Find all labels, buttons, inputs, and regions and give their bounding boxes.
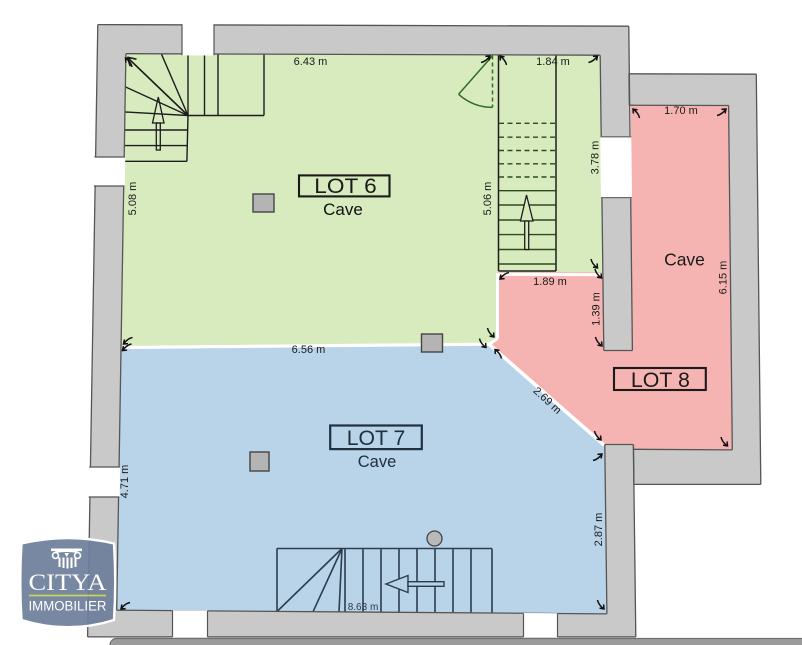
svg-text:CITYA: CITYA — [29, 570, 107, 595]
svg-text:Cave: Cave — [323, 200, 363, 219]
svg-text:Cave: Cave — [664, 250, 705, 270]
svg-text:6.15 m: 6.15 m — [718, 261, 730, 295]
svg-text:LOT 7: LOT 7 — [347, 427, 406, 450]
svg-text:IMMOBILIER: IMMOBILIER — [29, 599, 107, 614]
svg-text:LOT 6: LOT 6 — [314, 175, 377, 198]
svg-text:5.08 m: 5.08 m — [127, 182, 139, 216]
svg-text:6.43 m: 6.43 m — [294, 56, 328, 68]
svg-text:4.71 m: 4.71 m — [119, 465, 131, 499]
svg-text:1.70 m: 1.70 m — [664, 105, 698, 117]
svg-text:3.78 m: 3.78 m — [590, 141, 602, 175]
svg-text:1.39 m: 1.39 m — [591, 292, 603, 326]
svg-text:1.89 m: 1.89 m — [533, 276, 567, 288]
svg-text:5.06 m: 5.06 m — [482, 182, 494, 216]
svg-text:2.87 m: 2.87 m — [593, 513, 605, 547]
svg-text:Cave: Cave — [358, 453, 397, 471]
svg-text:1.84 m: 1.84 m — [536, 56, 570, 68]
svg-text:6.56 m: 6.56 m — [292, 344, 326, 356]
svg-text:LOT 8: LOT 8 — [631, 369, 690, 392]
svg-text:8.63 m: 8.63 m — [348, 602, 379, 613]
